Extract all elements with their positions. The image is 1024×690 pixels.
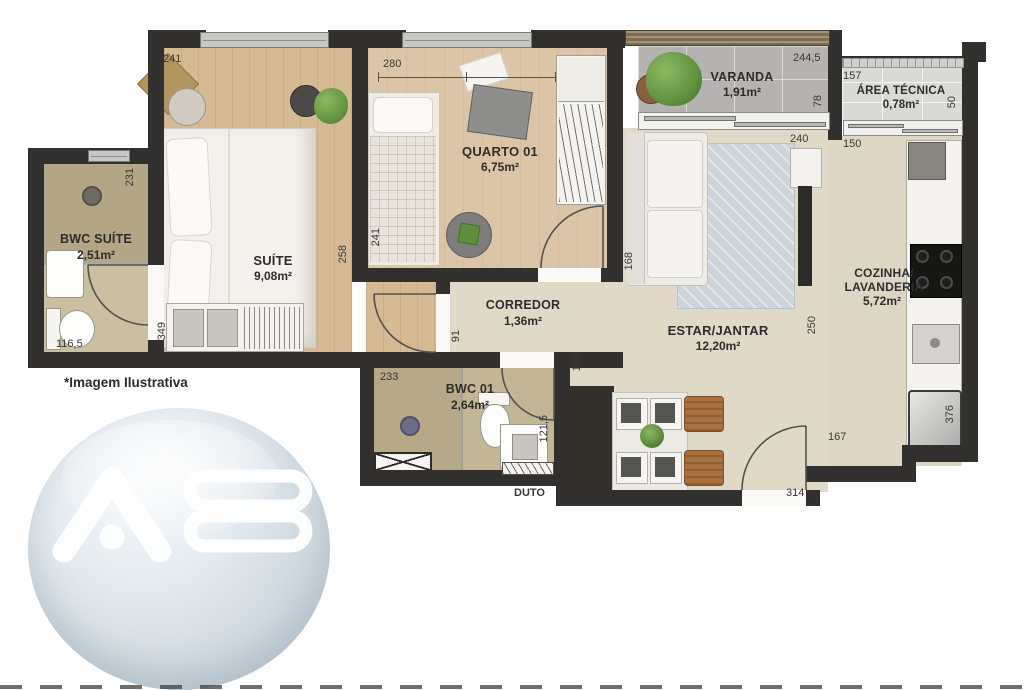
bottom-dashed-line — [0, 685, 1024, 689]
watermark-letter-a-dot — [100, 525, 125, 550]
watermark-logo — [0, 0, 1024, 690]
watermark-letter-b-top — [190, 476, 306, 506]
watermark-letter-b-bottom — [190, 516, 306, 546]
floor-plan: SUÍTE 9,08m² BWC SUÍTE 2,51m² QUARTO 01 … — [0, 0, 1024, 690]
